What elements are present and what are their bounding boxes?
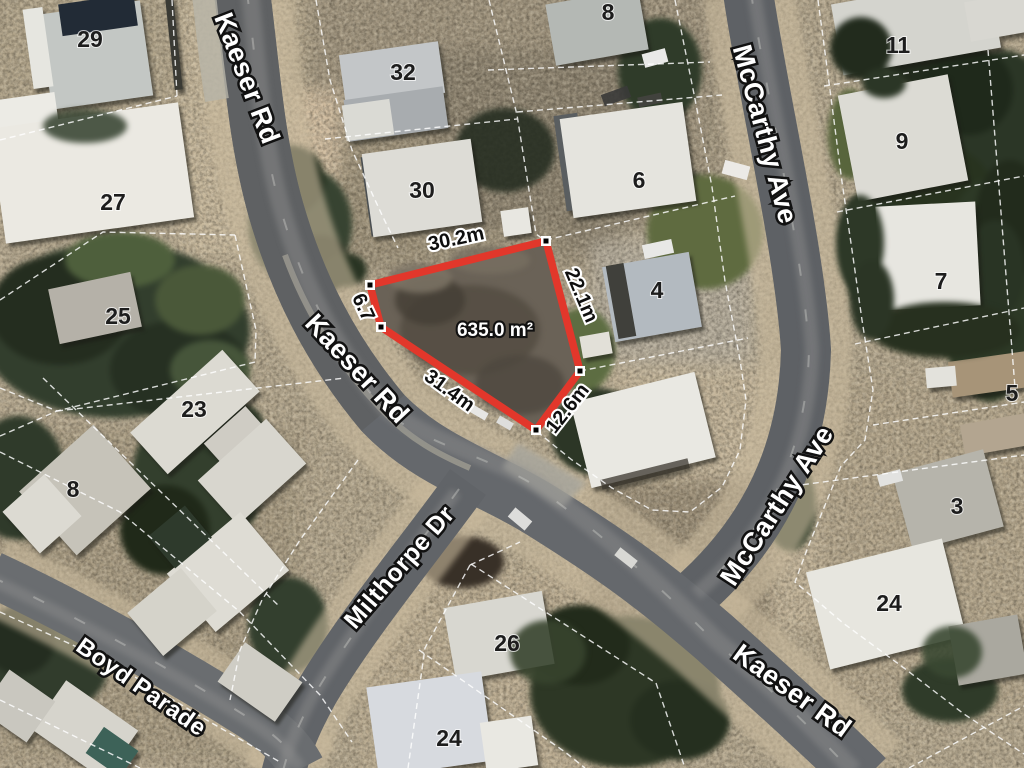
svg-text:23: 23 [181,396,207,422]
svg-text:27: 27 [100,189,126,215]
svg-text:24: 24 [876,590,902,616]
svg-text:9: 9 [896,128,909,154]
svg-text:4: 4 [651,277,664,303]
svg-text:11: 11 [886,32,911,58]
svg-text:7: 7 [935,268,948,294]
svg-text:8: 8 [602,0,615,25]
svg-text:24: 24 [436,725,462,751]
svg-text:30: 30 [409,177,435,203]
svg-text:5: 5 [1006,380,1019,406]
svg-text:6: 6 [633,167,646,193]
svg-text:3: 3 [951,493,964,519]
svg-text:8: 8 [67,476,80,502]
svg-text:26: 26 [494,630,520,656]
svg-text:32: 32 [390,59,416,85]
svg-text:29: 29 [77,26,103,52]
svg-text:25: 25 [105,303,131,329]
svg-text:635.0 m²: 635.0 m² [457,320,533,341]
